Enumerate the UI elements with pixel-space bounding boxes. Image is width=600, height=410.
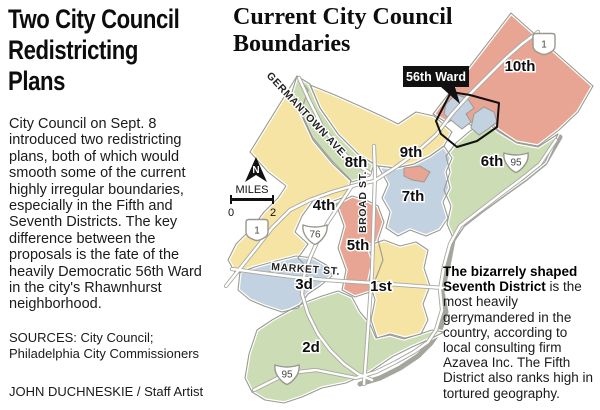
news-graphic: Two City Council Redistricting Plans Cit… bbox=[0, 0, 600, 410]
svg-text:95: 95 bbox=[510, 158, 522, 169]
us1-shield-upper: 1 bbox=[533, 34, 555, 55]
annotation-regular: is the most heavily gerrymandered in the… bbox=[443, 279, 593, 400]
scale-label: MILES bbox=[235, 184, 268, 196]
district-10-label: 10th bbox=[505, 58, 536, 75]
ward-56-callout-label: 56th Ward bbox=[406, 70, 466, 84]
scale-min: 0 bbox=[228, 207, 234, 219]
district-6-label: 6th bbox=[481, 153, 504, 170]
scale-max: 2 bbox=[270, 207, 276, 219]
district-9-label: 9th bbox=[400, 144, 423, 161]
svg-text:N: N bbox=[252, 165, 259, 176]
svg-text:1: 1 bbox=[254, 226, 260, 237]
district-3-label: 3d bbox=[295, 276, 313, 293]
district-7-label: 7th bbox=[402, 188, 425, 205]
district-8-label: 8th bbox=[345, 154, 368, 171]
annotation-paragraph: The bizarrely shaped Seventh District is… bbox=[443, 264, 598, 401]
us1-shield-lower: 1 bbox=[246, 220, 268, 241]
svg-text:95: 95 bbox=[281, 370, 293, 381]
svg-text:1: 1 bbox=[541, 40, 547, 51]
district-4-label: 4th bbox=[313, 197, 336, 214]
district-5-label: 5th bbox=[347, 237, 370, 254]
district-2-label: 2d bbox=[302, 339, 320, 356]
broad-st-label: BROAD ST. bbox=[357, 171, 369, 233]
svg-text:76: 76 bbox=[309, 230, 321, 241]
district-1-label: 1st bbox=[370, 278, 392, 295]
